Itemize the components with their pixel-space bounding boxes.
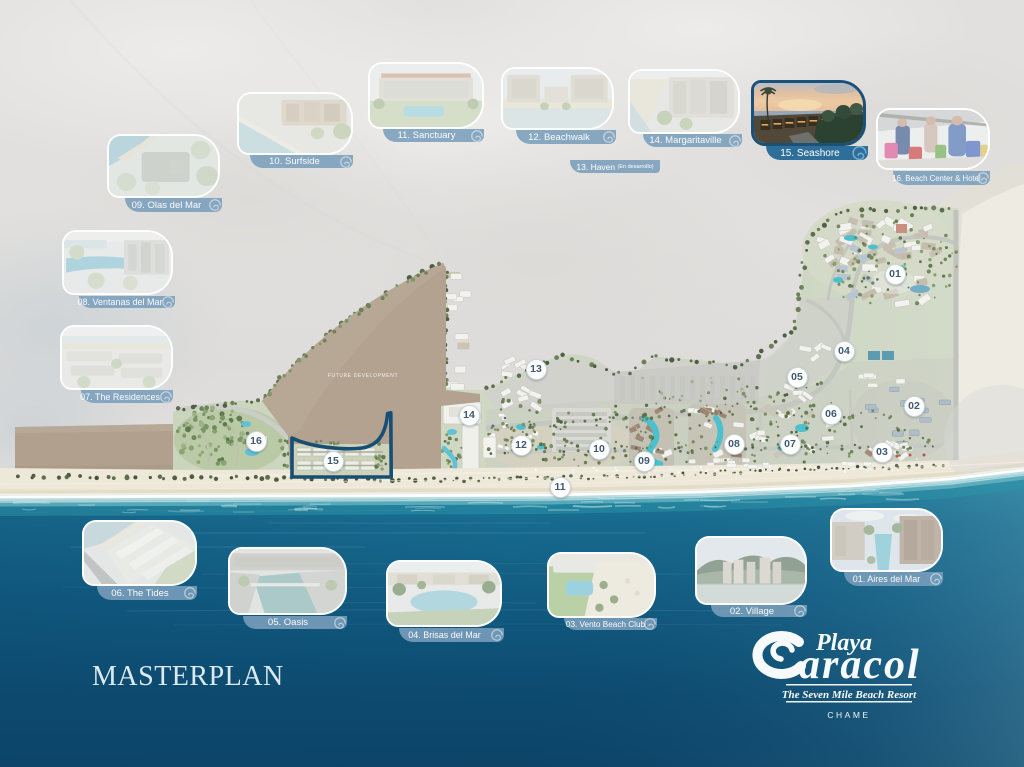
svg-text:The Seven Mile Beach Resort: The Seven Mile Beach Resort: [782, 689, 917, 701]
svg-text:FUTURE DEVELOPMENT: FUTURE DEVELOPMENT: [328, 373, 398, 379]
svg-text:aracol: aracol: [799, 642, 921, 688]
svg-text:CHAME: CHAME: [827, 710, 870, 720]
